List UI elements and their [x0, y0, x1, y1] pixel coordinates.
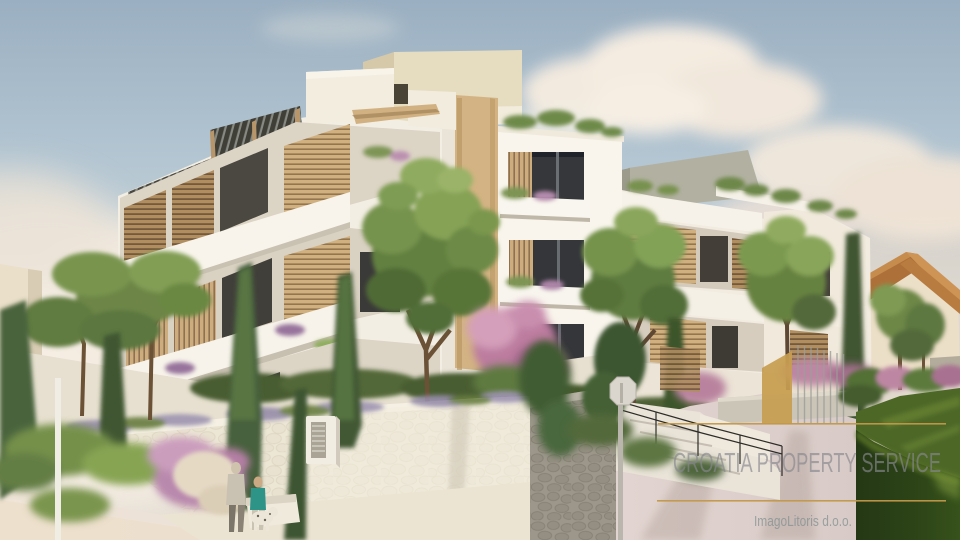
svg-text:ImagoLitoris d.o.o.: ImagoLitoris d.o.o. [754, 513, 852, 530]
svg-text:CROATIA PROPERTY SERVICE: CROATIA PROPERTY SERVICE [673, 447, 941, 478]
